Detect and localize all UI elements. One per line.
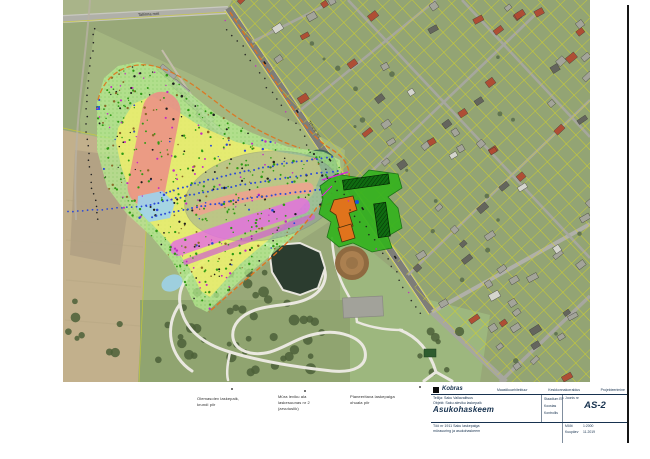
facility (319, 170, 402, 252)
title-block: Kobras Maastikuarhitektuur Keskkonnakorr… (431, 385, 627, 443)
checker-line: Kontrollis (544, 411, 558, 415)
title-block-vsep-1 (541, 394, 542, 422)
title-block-vsep-2 (562, 394, 563, 443)
legend-note-2-line3: (arvutuslik) (278, 406, 310, 412)
date-value: 11.2019 (583, 430, 595, 434)
work-number-line: Töö nr 1911 Saku laskepaiga (433, 424, 479, 428)
drawing-page: Tallinna mnt Tehase tee Olemasolev laske… (0, 0, 650, 459)
legend-note-2: Müra leviku ala laskesuunas nr 2 (arvutu… (278, 394, 310, 411)
work-title-line: mürauuring ja asukohaskeem (433, 429, 480, 433)
note-marker-1 (231, 388, 233, 390)
client-line: Tellija: Saku Vallavalitsus (433, 396, 473, 400)
object-line: Objekt: Saku aleviku laskepaik (433, 401, 482, 405)
stage-line: Staadium EP (544, 397, 564, 401)
sheet-border-right (627, 5, 629, 443)
legend-note-3-line2: ohuala piir (350, 400, 395, 406)
legend-note-2-line1: Müra leviku ala (278, 394, 310, 400)
scale-value: 1:2000 (583, 424, 593, 428)
legend-note-3-line1: Planeeritava laskepaiga (350, 394, 395, 400)
title-block-rule-2 (431, 422, 627, 423)
drawing-number: AS-2 (565, 400, 625, 411)
title-block-rule-1 (431, 394, 627, 395)
scale-label: Mõõt (565, 424, 573, 428)
site-map: Tallinna mnt Tehase tee (63, 0, 590, 382)
author-line: Koostas (544, 404, 556, 408)
header-field-3: Projekteerimine (601, 388, 625, 392)
legend-note-3: Planeeritava laskepaiga ohuala piir (350, 394, 395, 406)
company-logo-icon (433, 387, 439, 393)
date-label: Kuupäev (565, 430, 578, 434)
title-block-header: Maastikuarhitektuur Keskkonnakorraldus P… (497, 388, 625, 392)
legend-note-2-line2: laskesuunas nr 2 (278, 400, 310, 406)
note-marker-2 (304, 390, 306, 392)
legend-note-1-line1: Olemasolev laskepaik, (197, 396, 239, 402)
note-marker-3 (419, 386, 421, 388)
header-field-1: Maastikuarhitektuur (497, 388, 528, 392)
legend-note-1: Olemasolev laskepaik, krundi piir (197, 396, 239, 408)
drawing-title: Asukohaskeem (433, 405, 494, 414)
legend-note-1-line2: krundi piir (197, 402, 239, 408)
sheet-label: Joonis nr (565, 396, 579, 400)
company-name: Kobras (442, 386, 463, 392)
header-field-2: Keskkonnakorraldus (548, 388, 580, 392)
